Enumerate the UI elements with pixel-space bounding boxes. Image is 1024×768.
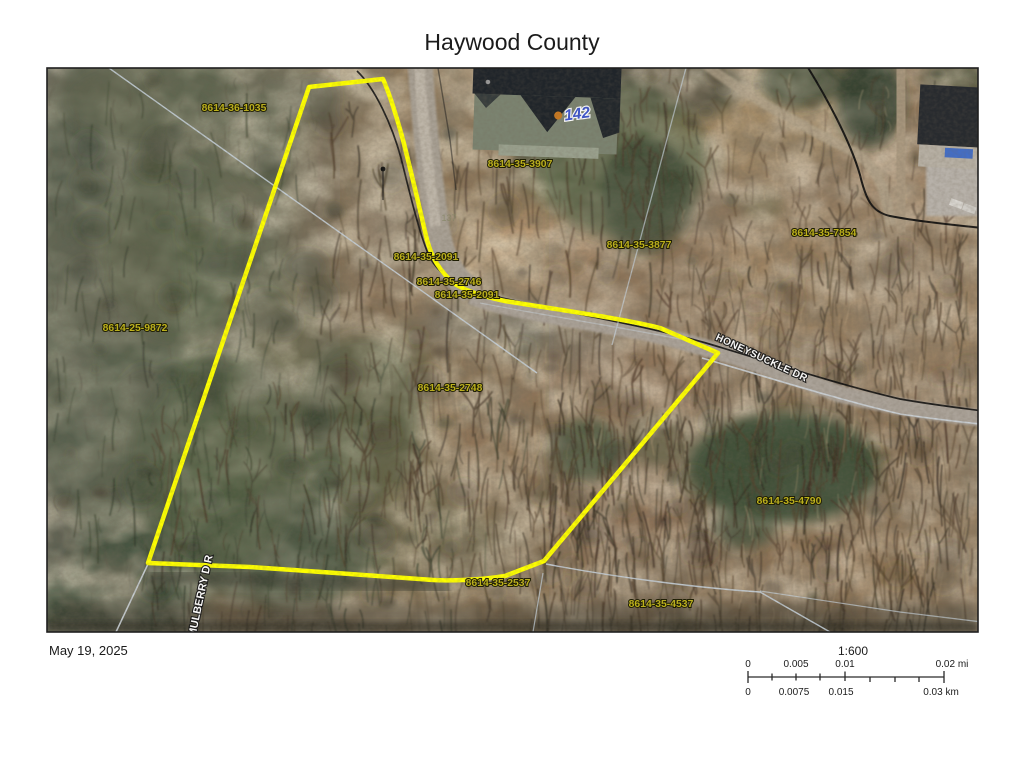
- svg-text:Haywood County: Haywood County: [424, 29, 600, 55]
- svg-text:May 19, 2025: May 19, 2025: [49, 643, 128, 658]
- svg-text:0: 0: [745, 687, 751, 698]
- svg-text:1:600: 1:600: [838, 644, 868, 658]
- svg-text:0.0075: 0.0075: [779, 687, 810, 698]
- svg-text:0.015: 0.015: [828, 687, 853, 698]
- svg-text:0.01: 0.01: [835, 659, 855, 670]
- svg-text:0.02 mi: 0.02 mi: [936, 659, 969, 670]
- svg-text:0.03 km: 0.03 km: [923, 687, 959, 698]
- svg-text:0: 0: [745, 659, 751, 670]
- svg-text:0.005: 0.005: [783, 659, 808, 670]
